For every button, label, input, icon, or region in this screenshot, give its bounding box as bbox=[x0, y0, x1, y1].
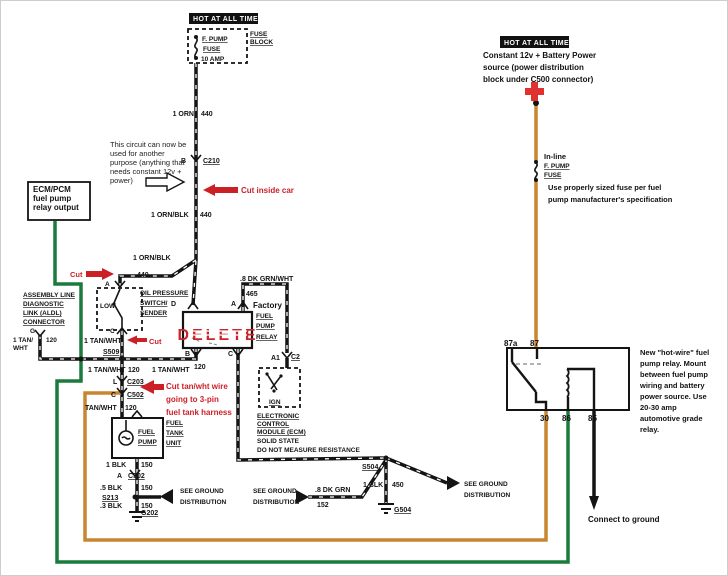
wire-grnwht-ckt: 465 bbox=[246, 291, 258, 298]
splice-s213: S213 bbox=[102, 495, 118, 502]
factory-1: Factory bbox=[253, 301, 282, 310]
see-ground-1a: SEE GROUND bbox=[180, 488, 224, 495]
tank-unit-2: TANK bbox=[166, 430, 184, 437]
aldl-4: CONNECTOR bbox=[23, 319, 65, 326]
wire-tanwht-a-ckt: 120 bbox=[128, 367, 140, 374]
circuit-note-1: This circuit can now be bbox=[110, 140, 186, 149]
relay-note-7: automotive grade bbox=[640, 414, 703, 423]
battery-note-2: source (power distribution bbox=[483, 63, 584, 72]
ecm-pcm-3: relay output bbox=[33, 203, 79, 212]
hot-left-label: HOT AT ALL TIMES bbox=[193, 16, 263, 23]
relay-term-a: A bbox=[231, 301, 236, 308]
relay-term-b: B bbox=[185, 351, 190, 358]
relay-85: 85 bbox=[588, 414, 597, 423]
fuse-amp: 10 AMP bbox=[201, 56, 225, 63]
wire-ornblk2-ckt: 440 bbox=[137, 272, 149, 279]
pump-label-2: PUMP bbox=[138, 439, 157, 446]
oil-term-a: A bbox=[105, 281, 110, 288]
wire-blk450-ckt: 450 bbox=[392, 482, 404, 489]
relay-note-5: power source. Use bbox=[640, 392, 707, 401]
wiring-diagram: HOT AT ALL TIMES F. PUMP FUSE 10 AMP FUS… bbox=[0, 0, 728, 576]
ground-g202: G202 bbox=[141, 510, 158, 517]
conn-a: A bbox=[117, 473, 122, 480]
cut1-label: Cut bbox=[70, 270, 83, 279]
wire-tanwht-pump-ckt: 120 bbox=[125, 405, 137, 412]
aldl-wire-1: 1 TAN/ bbox=[13, 337, 33, 344]
relay-term-d: D bbox=[171, 301, 176, 308]
wire-tanwht-s509: 1 TAN/WHT bbox=[84, 338, 122, 345]
inline-fuse-3: FUSE bbox=[544, 172, 562, 179]
conn-c502: C502 bbox=[127, 392, 144, 399]
splice-s504: S504 bbox=[362, 464, 378, 471]
relay-note-8: relay. bbox=[640, 425, 659, 434]
wire-1orn-ckt: 440 bbox=[201, 111, 213, 118]
wire-1orn: 1 ORN bbox=[173, 111, 194, 118]
see-ground-2b: DISTRIBUTION bbox=[253, 499, 300, 506]
ecm-5: DO NOT MEASURE RESISTANCE bbox=[257, 447, 360, 454]
wire-grnwht: .8 DK GRN/WHT bbox=[240, 276, 294, 283]
conn-c210: C210 bbox=[203, 158, 220, 165]
wire-ornblk1-ckt: 440 bbox=[200, 212, 212, 219]
relay-note-3: between fuel pump bbox=[640, 370, 708, 379]
ecm-pcm-1: ECM/PCM bbox=[33, 185, 71, 194]
oil-title-2: SWITCH/ bbox=[140, 300, 168, 307]
fuse-block-label-1: FUSE bbox=[250, 31, 268, 38]
aldl-2: DIAGNOSTIC bbox=[23, 301, 64, 308]
relay-note-4: wiring and battery bbox=[639, 381, 705, 390]
cut2-label: Cut bbox=[149, 337, 162, 346]
cut-tan-1: Cut tan/wht wire bbox=[166, 382, 228, 391]
wire-blk1: 1 BLK bbox=[106, 462, 126, 469]
conn-c203: C203 bbox=[127, 379, 144, 386]
relay-note-1: New "hot-wire" fuel bbox=[640, 348, 709, 357]
battery-note-1: Constant 12v + Battery Power bbox=[483, 51, 596, 60]
aldl-3: LINK (ALDL) bbox=[23, 310, 62, 317]
wire-ornblk1: 1 ORN/BLK bbox=[151, 212, 189, 219]
see-ground-2a: SEE GROUND bbox=[253, 488, 297, 495]
relay-term-c: C bbox=[228, 351, 233, 358]
relay-87: 87 bbox=[530, 339, 539, 348]
aldl-1: ASSEMBLY LINE bbox=[23, 292, 76, 299]
relay-note-2: pump relay. Mount bbox=[640, 359, 707, 368]
ecm-4: SOLID STATE bbox=[257, 438, 300, 445]
conn-c502b: C502 bbox=[128, 473, 145, 480]
ecm-3: MODULE (ECM) bbox=[257, 429, 306, 436]
wire-blk3: .3 BLK bbox=[100, 503, 122, 510]
ecm-node-3 bbox=[272, 389, 275, 392]
cut-inside-car-label: Cut inside car bbox=[241, 186, 294, 195]
wire-blk450: 1 BLK bbox=[363, 482, 383, 489]
circuit-note-5: power) bbox=[110, 176, 133, 185]
wire-blk3-ckt: 150 bbox=[141, 503, 153, 510]
fuse-name: F. PUMP bbox=[202, 36, 228, 43]
relay-86: 86 bbox=[562, 414, 571, 423]
fuse-block-label-2: BLOCK bbox=[250, 39, 273, 46]
ecm-1: ELECTRONIC bbox=[257, 413, 300, 420]
relay-30: 30 bbox=[540, 414, 549, 423]
aldl-circuit: 120 bbox=[46, 337, 57, 344]
wire-blk5-ckt: 150 bbox=[141, 485, 153, 492]
see-ground-1b: DISTRIBUTION bbox=[180, 499, 227, 506]
wire-ornblk2: 1 ORN/BLK bbox=[133, 255, 171, 262]
wire-blk1-ckt: 150 bbox=[141, 462, 153, 469]
ecm-ign: IGN bbox=[269, 399, 281, 406]
aldl-terminal-g: G bbox=[30, 328, 35, 335]
connect-to-ground-label: Connect to ground bbox=[588, 515, 660, 524]
factory-3: PUMP bbox=[256, 323, 275, 330]
pump-label-1: FUEL bbox=[138, 429, 155, 436]
wire-dkgrn-ckt: 152 bbox=[317, 502, 329, 509]
ecm-node-2 bbox=[279, 374, 282, 377]
fuse-word: FUSE bbox=[203, 46, 221, 53]
wire-tanwht-pump: TAN/WHT bbox=[85, 405, 117, 412]
wire-tanwht-a: 1 TAN/WHT bbox=[88, 367, 126, 374]
aldl-wire-2: WHT bbox=[13, 345, 28, 352]
inline-fuse-1: In-line bbox=[544, 152, 566, 161]
tank-unit-1: FUEL bbox=[166, 420, 183, 427]
ecm-pcm-2: fuel pump bbox=[33, 194, 71, 203]
cut-tan-3: fuel tank harness bbox=[166, 408, 232, 417]
oil-term-c: C bbox=[110, 328, 115, 335]
ecm-2: CONTROL bbox=[257, 421, 289, 428]
battery-note-3: block under C500 connector) bbox=[483, 75, 594, 84]
ecm-term-a1: A1 bbox=[271, 355, 280, 362]
factory-4: RELAY bbox=[256, 334, 278, 341]
wire-tanwht-b: 1 TAN/WHT bbox=[152, 367, 190, 374]
hot-right-label: HOT AT ALL TIMES bbox=[504, 40, 574, 47]
diagram-canvas: HOT AT ALL TIMES F. PUMP FUSE 10 AMP FUS… bbox=[0, 0, 728, 576]
splice-s509: S509 bbox=[103, 349, 119, 356]
relay-note-6: 20-30 amp bbox=[640, 403, 677, 412]
circuit-note-2: used for another bbox=[110, 149, 165, 158]
wire-tanwht-b-ckt: 120 bbox=[194, 364, 206, 371]
see-ground-3b: DISTRIBUTION bbox=[464, 492, 511, 499]
conn-c: C bbox=[111, 392, 116, 399]
ecm-term-c2: C2 bbox=[291, 354, 300, 361]
ground-g504: G504 bbox=[394, 507, 411, 514]
ecm-node-1 bbox=[265, 372, 268, 375]
circuit-note-3: purpose (anything that bbox=[110, 158, 186, 167]
inline-fuse-2: F. PUMP bbox=[544, 163, 570, 170]
relay-87a: 87a bbox=[504, 339, 518, 348]
inline-fuse-note-2: pump manufacturer's specification bbox=[548, 195, 673, 204]
inline-fuse-note-1: Use properly sized fuse per fuel bbox=[548, 183, 661, 192]
oil-low-label: LOW bbox=[100, 303, 116, 310]
tank-unit-3: UNIT bbox=[166, 440, 181, 447]
oil-title-3: SENDER bbox=[140, 310, 167, 317]
wire-blk5: .5 BLK bbox=[100, 485, 122, 492]
factory-2: FUEL bbox=[256, 313, 273, 320]
see-ground-3a: SEE GROUND bbox=[464, 481, 508, 488]
conn-l: L bbox=[113, 379, 118, 386]
wire-dkgrn: .8 DK GRN bbox=[315, 487, 350, 494]
oil-title-1: OIL PRESSURE bbox=[140, 290, 189, 297]
cut-tan-2: going to 3-pin bbox=[166, 395, 219, 404]
